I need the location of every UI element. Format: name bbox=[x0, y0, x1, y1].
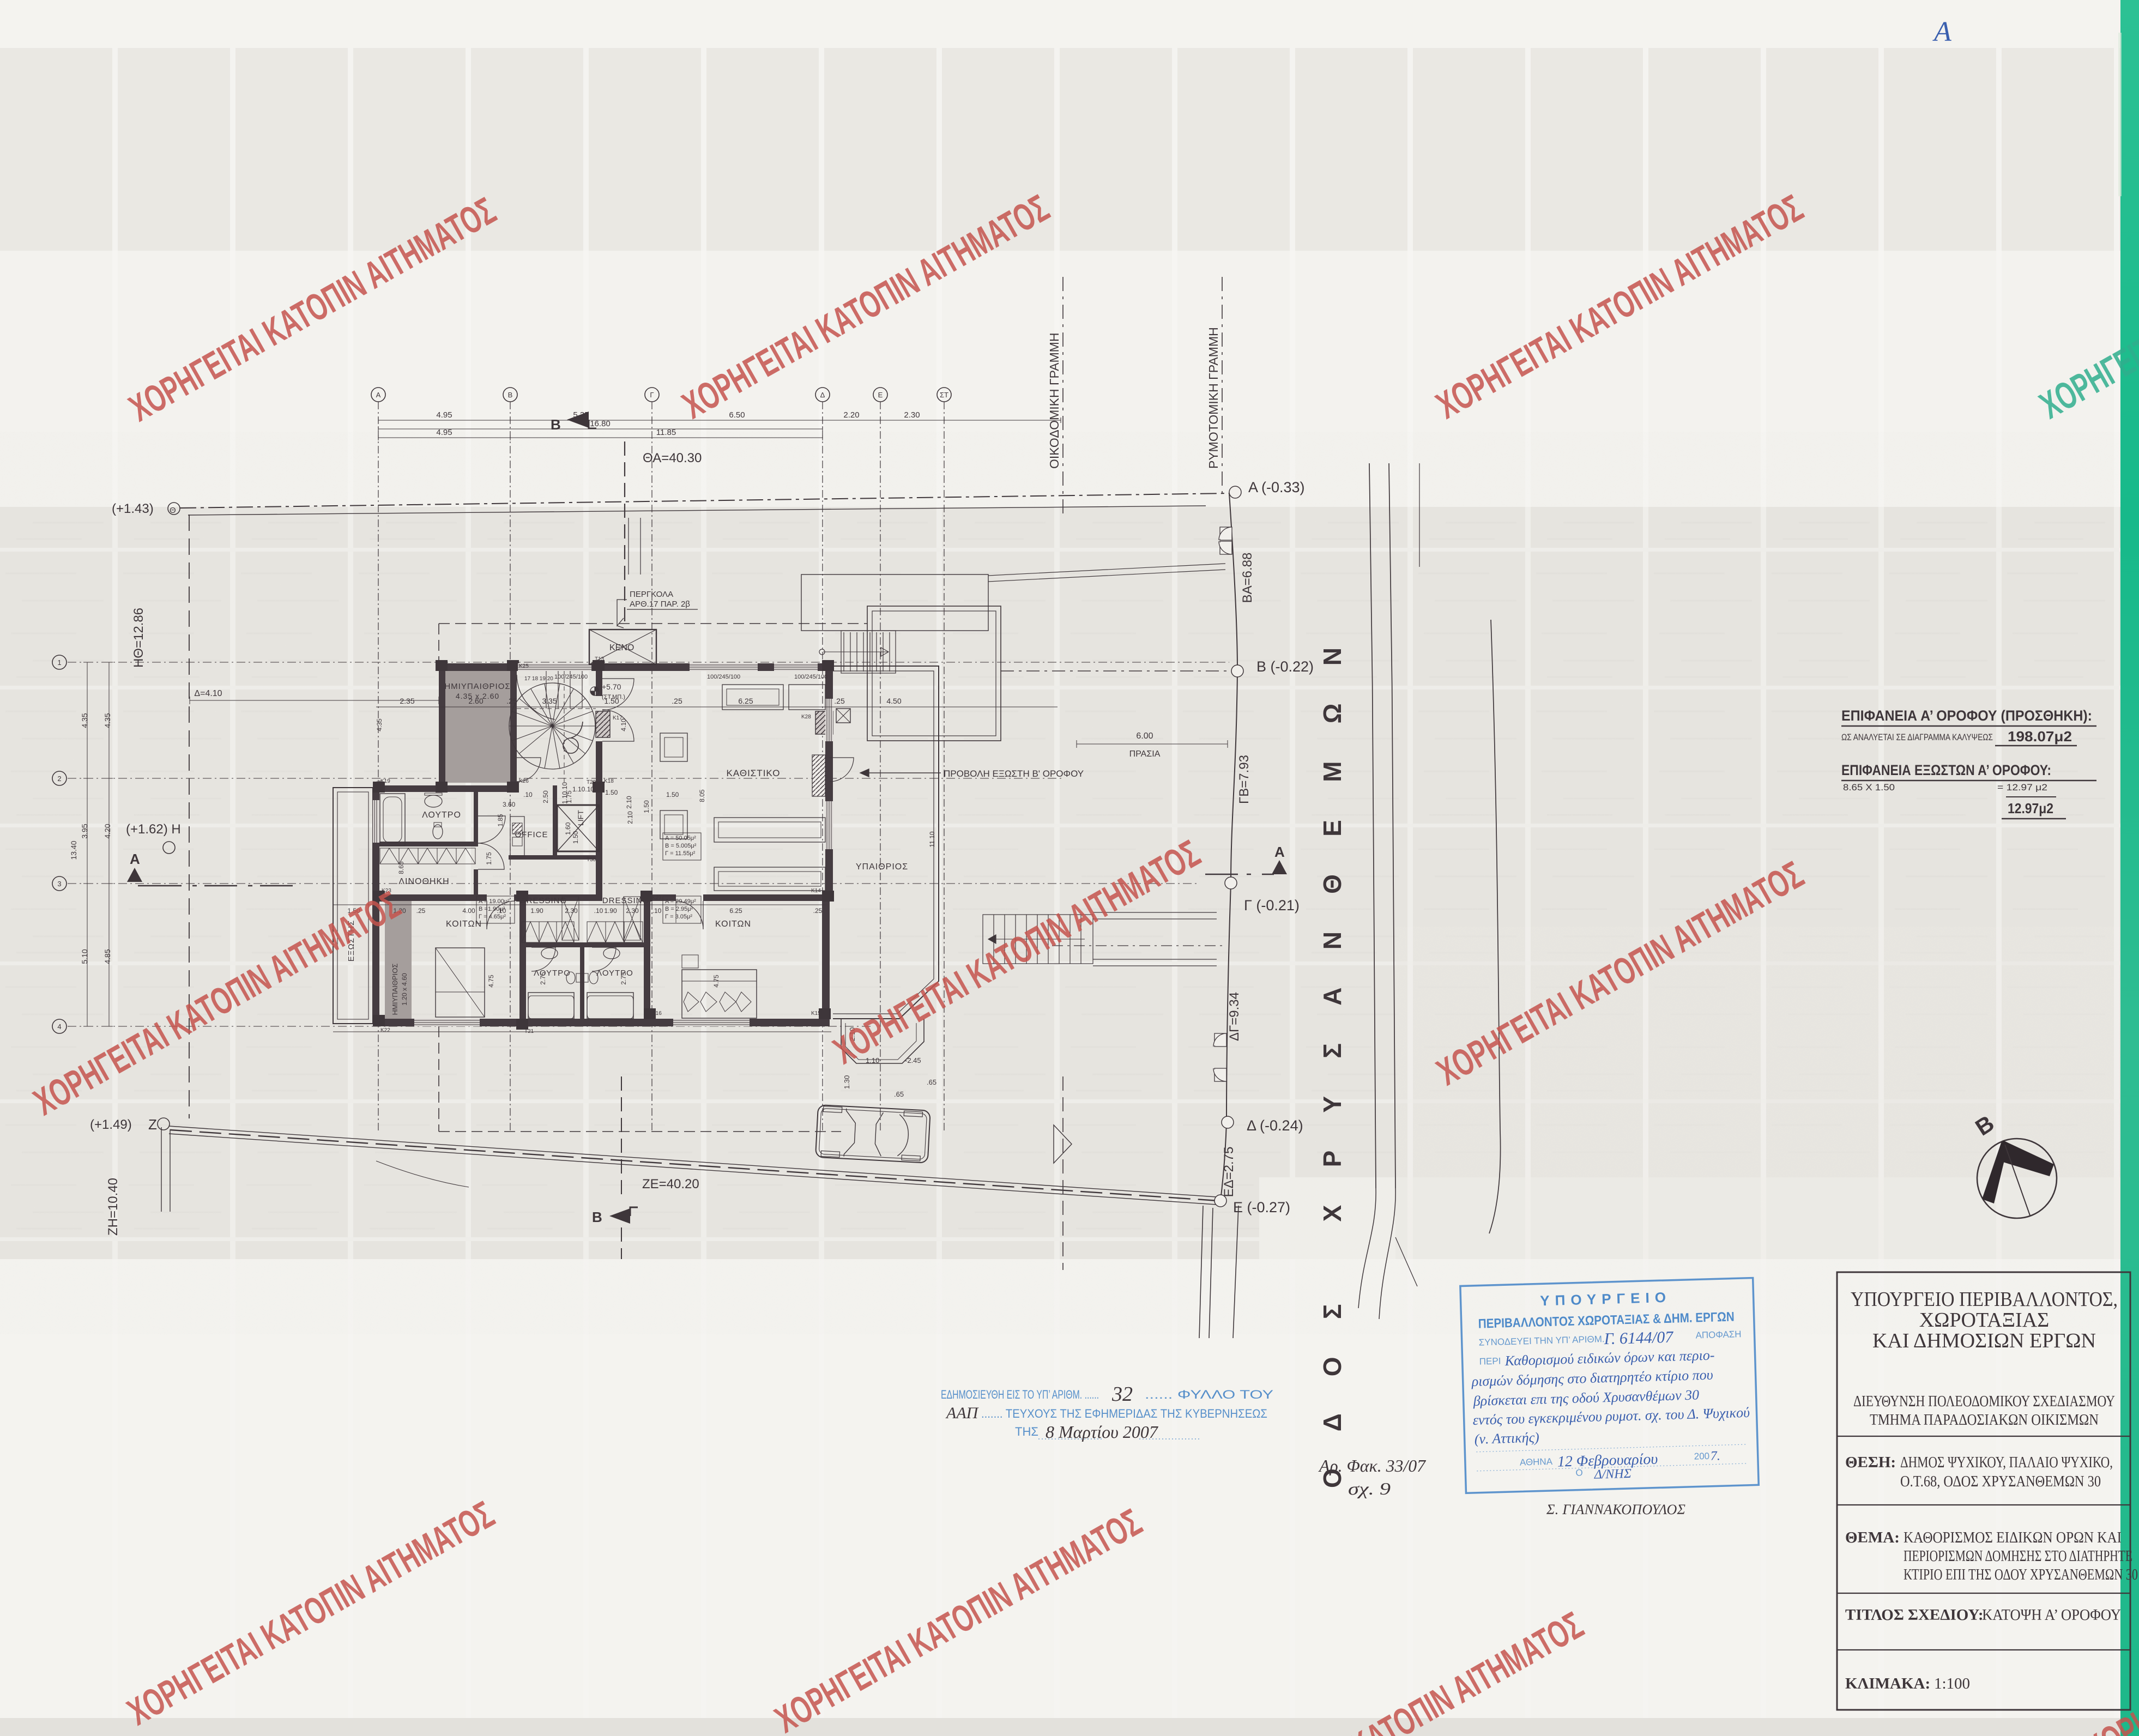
svg-text:4.75: 4.75 bbox=[487, 975, 495, 988]
svg-text:ΛΟΥΤΡΟ: ΛΟΥΤΡΟ bbox=[596, 969, 633, 978]
svg-text:Z: Z bbox=[148, 1116, 157, 1133]
svg-text:ΧΩΡΟΤΑΞΙΑΣ: ΧΩΡΟΤΑΞΙΑΣ bbox=[1919, 1309, 2050, 1332]
svg-text:Γ = 3.05μ²: Γ = 3.05μ² bbox=[665, 914, 692, 920]
svg-text:1.60: 1.60 bbox=[564, 822, 572, 835]
svg-text:B: B bbox=[551, 416, 561, 433]
svg-text:ΗΜΙΥΠΑΙΘΡΙΟΣ: ΗΜΙΥΠΑΙΘΡΙΟΣ bbox=[444, 682, 510, 691]
svg-text:A = 29.49μ²: A = 29.49μ² bbox=[665, 898, 696, 905]
svg-text:200: 200 bbox=[1694, 1451, 1709, 1462]
svg-text:ΕΔΗΜΟΣΙΕΥΘΗ ΕΙΣ ΤΟ ΥΠ’ ΑΡΙΘ: ΕΔΗΜΟΣΙΕΥΘΗ ΕΙΣ ΤΟ ΥΠ’ ΑΡΙΘΜ. ...... bbox=[941, 1388, 1099, 1401]
svg-text:K28: K28 bbox=[801, 714, 811, 720]
svg-text:-2.45: -2.45 bbox=[905, 1056, 921, 1064]
svg-text:1.90: 1.90 bbox=[530, 907, 543, 915]
svg-text:ΒΑ=6.88: ΒΑ=6.88 bbox=[1240, 553, 1255, 603]
svg-text:4.50: 4.50 bbox=[886, 697, 901, 705]
svg-text:A = 19.00μ²: A = 19.00μ² bbox=[479, 898, 510, 905]
svg-text:K18: K18 bbox=[604, 778, 614, 784]
svg-text:DRESSING: DRESSING bbox=[602, 896, 649, 905]
svg-text:2.75: 2.75 bbox=[539, 972, 547, 985]
svg-text:12.97μ2: 12.97μ2 bbox=[2008, 800, 2053, 816]
svg-text:ΕΠΙΦΑΝΕΙΑ Α’ ΟΡΟΦΟΥ (ΠΡΟΣΘΗΚ: ΕΠΙΦΑΝΕΙΑ Α’ ΟΡΟΦΟΥ (ΠΡΟΣΘΗΚΗ): bbox=[1841, 707, 2092, 724]
svg-text:4.00: 4.00 bbox=[462, 907, 475, 915]
svg-text:100/245/100: 100/245/100 bbox=[794, 674, 827, 680]
svg-text:11.10: 11.10 bbox=[928, 831, 936, 847]
svg-text:ΛΙΝΟΘΗΚΗ: ΛΙΝΟΘΗΚΗ bbox=[398, 877, 449, 886]
svg-text:4.35: 4.35 bbox=[376, 718, 383, 731]
svg-text:ΘΕΜΑ:: ΘΕΜΑ: bbox=[1845, 1529, 1900, 1546]
svg-text:16.80: 16.80 bbox=[590, 419, 611, 428]
svg-text:+5.70: +5.70 bbox=[602, 682, 621, 691]
svg-text:DRESSING: DRESSING bbox=[520, 896, 567, 905]
svg-text:ΚΑΘΟΡΙΣΜΟΣ ΕΙΔΙΚΩΝ ΟΡΩΝ ΚΑΙ: ΚΑΘΟΡΙΣΜΟΣ ΕΙΔΙΚΩΝ ΟΡΩΝ ΚΑΙ bbox=[1904, 1529, 2122, 1546]
svg-text:O: O bbox=[1575, 1467, 1583, 1478]
svg-text:Δ (-0.24): Δ (-0.24) bbox=[1247, 1117, 1303, 1134]
svg-text:2.10: 2.10 bbox=[626, 811, 634, 824]
svg-text:ΠΕΡΙ: ΠΕΡΙ bbox=[1479, 1356, 1501, 1366]
svg-text:3.95: 3.95 bbox=[80, 824, 89, 838]
svg-text:T21: T21 bbox=[524, 1029, 534, 1035]
svg-text:ΚΛΙΜΑΚΑ:: ΚΛΙΜΑΚΑ: bbox=[1845, 1675, 1930, 1692]
svg-text:B: B bbox=[592, 1209, 602, 1225]
svg-text:4.75: 4.75 bbox=[712, 975, 720, 988]
svg-text:(ν. Αττικής): (ν. Αττικής) bbox=[1474, 1430, 1539, 1447]
svg-text:11.85: 11.85 bbox=[656, 428, 676, 437]
svg-text:2.60: 2.60 bbox=[468, 697, 483, 705]
svg-text:2.75: 2.75 bbox=[620, 972, 627, 985]
svg-text:.25: .25 bbox=[672, 697, 682, 705]
svg-text:.25: .25 bbox=[813, 907, 823, 915]
svg-text:LIFT: LIFT bbox=[576, 810, 585, 826]
svg-text:Δ: Δ bbox=[820, 391, 825, 399]
svg-text:1:100: 1:100 bbox=[1934, 1675, 1970, 1692]
svg-text:K22: K22 bbox=[380, 1027, 390, 1033]
svg-text:ΥΠΑΙΘΡΙΟΣ: ΥΠΑΙΘΡΙΟΣ bbox=[856, 862, 908, 872]
svg-text:.10: .10 bbox=[497, 907, 506, 915]
svg-text:ΚΑΤΟΨΗ Α’ ΟΡΟΦΟΥ: ΚΑΤΟΨΗ Α’ ΟΡΟΦΟΥ bbox=[1982, 1606, 2121, 1624]
svg-text:ΘΑ=40.30: ΘΑ=40.30 bbox=[643, 451, 702, 465]
svg-text:1.10.10: 1.10.10 bbox=[572, 785, 594, 793]
svg-text:A: A bbox=[130, 851, 140, 867]
svg-text:7.: 7. bbox=[1710, 1449, 1720, 1463]
svg-text:4.95: 4.95 bbox=[436, 410, 452, 420]
svg-text:32: 32 bbox=[1111, 1383, 1133, 1406]
svg-text:2: 2 bbox=[57, 775, 61, 783]
svg-text:O.T.68, ΟΔΟΣ ΧΡΥΣΑΝΘΕΜΩΝ 30: O.T.68, ΟΔΟΣ ΧΡΥΣΑΝΘΕΜΩΝ 30 bbox=[1900, 1473, 2101, 1490]
svg-text:1.20 x 4.60: 1.20 x 4.60 bbox=[401, 973, 408, 1006]
svg-text:ZH=10.40: ZH=10.40 bbox=[106, 1178, 120, 1236]
svg-text:ΓΒ=7.93: ΓΒ=7.93 bbox=[1237, 755, 1252, 804]
svg-text:(+1.62) H: (+1.62) H bbox=[126, 822, 181, 837]
svg-text:8.65 X 1.50: 8.65 X 1.50 bbox=[1843, 782, 1895, 793]
svg-text:ΩΣ ΑΝΑΛΥΕΤΑΙ ΣΕ ΔΙΑΓΡΑΜΜΑ ΚΑΛΥ: ΩΣ ΑΝΑΛΥΕΤΑΙ ΣΕ ΔΙΑΓΡΑΜΜΑ ΚΑΛΥΨΕΩΣ bbox=[1841, 732, 1993, 742]
svg-text:B = 5.005μ²: B = 5.005μ² bbox=[665, 843, 697, 849]
svg-text:ΔΗΜΟΣ ΨΥΧΙΚΟΥ, ΠΑΛΑΙΟ ΨΥΧΙΚΟ,: ΔΗΜΟΣ ΨΥΧΙΚΟΥ, ΠΑΛΑΙΟ ΨΥΧΙΚΟ, bbox=[1900, 1454, 2113, 1471]
svg-text:A: A bbox=[1274, 844, 1285, 860]
svg-text:100/245/100: 100/245/100 bbox=[554, 674, 588, 680]
svg-text:K20: K20 bbox=[515, 895, 524, 901]
svg-text:4.95: 4.95 bbox=[436, 428, 452, 437]
svg-text:.25: .25 bbox=[506, 697, 517, 705]
svg-text:ΚΤΙΡΙΟ ΕΠΙ ΤΗΣ ΟΔΟΥ ΧΡΥΣΑΝΘΕΜΩ: ΚΤΙΡΙΟ ΕΠΙ ΤΗΣ ΟΔΟΥ ΧΡΥΣΑΝΘΕΜΩΝ 30 bbox=[1904, 1566, 2138, 1583]
svg-text:1.50: 1.50 bbox=[643, 800, 650, 813]
svg-text:B: B bbox=[508, 391, 513, 399]
svg-text:....... ΤΕΥΧΟΥΣ ΤΗΣ ΕΦΗΜΕΡΙ: ....... ΤΕΥΧΟΥΣ ΤΗΣ ΕΦΗΜΕΡΙΔΑΣ ΤΗΣ ΚΥΒΕΡ… bbox=[981, 1407, 1267, 1420]
svg-text:ΚΑΙ ΔΗΜΟΣΙΩΝ ΕΡΓΩΝ: ΚΑΙ ΔΗΜΟΣΙΩΝ ΕΡΓΩΝ bbox=[1872, 1329, 2096, 1352]
svg-text:198.07μ2: 198.07μ2 bbox=[2008, 728, 2072, 745]
svg-text:ΟΙΚΟΔΟΜΙΚΗ ΓΡΑΜΜΗ: ΟΙΚΟΔΟΜΙΚΗ ΓΡΑΜΜΗ bbox=[1047, 332, 1061, 469]
svg-text:4.35: 4.35 bbox=[103, 713, 112, 728]
svg-text:4.85: 4.85 bbox=[103, 949, 112, 964]
svg-text:K19: K19 bbox=[380, 778, 390, 784]
svg-text:.10: .10 bbox=[523, 791, 533, 799]
svg-text:ΔΓ=9.34: ΔΓ=9.34 bbox=[1227, 992, 1242, 1041]
svg-text:1.75: 1.75 bbox=[485, 852, 493, 865]
svg-text:ΤΜΗΜΑ ΠΑΡΑΔΟΣΙΑΚΩΝ ΟΙΚΙΣΜΩΝ: ΤΜΗΜΑ ΠΑΡΑΔΟΣΙΑΚΩΝ ΟΙΚΙΣΜΩΝ bbox=[1870, 1411, 2099, 1429]
svg-text:T30: T30 bbox=[587, 857, 596, 863]
svg-text:100/245/100: 100/245/100 bbox=[707, 674, 740, 680]
svg-text:ΑΡΘ.17 ΠΑΡ. 2β: ΑΡΘ.17 ΠΑΡ. 2β bbox=[630, 600, 690, 609]
svg-text:ΑΑΠ: ΑΑΠ bbox=[945, 1404, 980, 1422]
svg-text:ΕΠΙΦΑΝΕΙΑ ΕΞΩΣΤΩΝ Α’ ΟΡΟΦΟΥ:: ΕΠΙΦΑΝΕΙΑ ΕΞΩΣΤΩΝ Α’ ΟΡΟΦΟΥ: bbox=[1841, 762, 2051, 778]
svg-text:.65: .65 bbox=[894, 1090, 904, 1098]
svg-text:1.50: 1.50 bbox=[604, 697, 619, 705]
svg-text:Γ. 6144/07: Γ. 6144/07 bbox=[1603, 1328, 1674, 1348]
svg-text:4.20: 4.20 bbox=[103, 824, 112, 838]
svg-text:ΟΔΟΣ ΧΡΥΣΑΝΘΕΜΩΝ: ΟΔΟΣ ΧΡΥΣΑΝΘΕΜΩΝ bbox=[1318, 616, 1346, 1488]
svg-text:(+1.49): (+1.49) bbox=[90, 1117, 132, 1132]
svg-text:8 Μαρτίου 2007: 8 Μαρτίου 2007 bbox=[1046, 1422, 1159, 1442]
svg-text:8.65: 8.65 bbox=[397, 861, 405, 874]
svg-text:ΑΠΟΦΑΣΗ: ΑΠΟΦΑΣΗ bbox=[1695, 1329, 1742, 1340]
svg-text:K14: K14 bbox=[811, 888, 821, 894]
svg-text:HΘ=12.86: HΘ=12.86 bbox=[131, 608, 146, 668]
svg-text:1.50: 1.50 bbox=[666, 791, 679, 799]
svg-text:2.20: 2.20 bbox=[843, 410, 859, 420]
svg-text:13.40: 13.40 bbox=[69, 840, 78, 860]
svg-text:ΑΘΗΝΑ: ΑΘΗΝΑ bbox=[1520, 1456, 1553, 1468]
svg-text:ΠΡΟΒΟΛΗ ΕΞΩΣΤΗ Β' ΟΡΟΦΟΥ: ΠΡΟΒΟΛΗ ΕΞΩΣΤΗ Β' ΟΡΟΦΟΥ bbox=[944, 769, 1084, 779]
svg-text:6.50: 6.50 bbox=[729, 410, 745, 420]
svg-text:ΤΗΣ: ΤΗΣ bbox=[1015, 1425, 1038, 1438]
svg-text:E: E bbox=[878, 391, 883, 399]
svg-text:17 18 19 20: 17 18 19 20 bbox=[524, 676, 553, 682]
svg-text:Αρ. Φακ. 33/07: Αρ. Φακ. 33/07 bbox=[1318, 1456, 1427, 1475]
svg-text:6.25: 6.25 bbox=[729, 907, 742, 915]
svg-text:.25: .25 bbox=[834, 697, 845, 705]
svg-text:2.50: 2.50 bbox=[542, 790, 549, 803]
svg-text:A: A bbox=[376, 391, 381, 399]
svg-text:ΡΥΜΟΤΟΜΙΚΗ ΓΡΑΜΜΗ: ΡΥΜΟΤΟΜΙΚΗ ΓΡΑΜΜΗ bbox=[1206, 327, 1220, 469]
svg-text:A (-0.33): A (-0.33) bbox=[1248, 479, 1305, 495]
svg-text:Δ=4.10: Δ=4.10 bbox=[194, 689, 222, 698]
svg-text:1.90: 1.90 bbox=[604, 907, 617, 915]
svg-text:.10: .10 bbox=[652, 907, 662, 915]
svg-text:E (-0.27): E (-0.27) bbox=[1233, 1199, 1290, 1215]
svg-text:1.30: 1.30 bbox=[843, 1075, 851, 1089]
svg-text:3: 3 bbox=[57, 880, 61, 888]
svg-text:ΛΟΥΤΡΟ: ΛΟΥΤΡΟ bbox=[422, 810, 461, 820]
svg-text:K25: K25 bbox=[519, 663, 529, 669]
svg-text:6.25: 6.25 bbox=[738, 697, 753, 705]
svg-text:OFFICE: OFFICE bbox=[515, 830, 548, 839]
svg-text:KENO: KENO bbox=[609, 643, 634, 652]
svg-text:1.75: 1.75 bbox=[565, 790, 573, 803]
svg-text:2.35: 2.35 bbox=[400, 697, 414, 705]
svg-text:Σ. ΓΙΑΝΝΑΚΟΠΟΥΛΟΣ: Σ. ΓΙΑΝΝΑΚΟΠΟΥΛΟΣ bbox=[1546, 1502, 1686, 1517]
svg-text:1.50: 1.50 bbox=[572, 831, 579, 844]
svg-text:(+1.43): (+1.43) bbox=[112, 501, 154, 516]
svg-text:2.30: 2.30 bbox=[626, 907, 639, 915]
svg-text:Δ/ΝΗΣ: Δ/ΝΗΣ bbox=[1593, 1467, 1632, 1482]
svg-text:ΠΡΑΣΙΑ: ΠΡΑΣΙΑ bbox=[1129, 749, 1161, 759]
svg-text:K27: K27 bbox=[652, 895, 662, 901]
svg-text:.25: .25 bbox=[416, 907, 426, 915]
svg-text:ΣΤ: ΣΤ bbox=[940, 391, 948, 399]
svg-text:= 12.97 μ2: = 12.97 μ2 bbox=[1997, 782, 2047, 793]
svg-text:Γ = 11.55μ²: Γ = 11.55μ² bbox=[665, 850, 696, 857]
svg-text:ΔΙΕΥΘΥΝΣΗ ΠΟΛΕΟΔΟΜΙΚΟΥ ΣΧΕΔΙ: ΔΙΕΥΘΥΝΣΗ ΠΟΛΕΟΔΟΜΙΚΟΥ ΣΧΕΔΙΑΣΜΟΥ bbox=[1853, 1393, 2115, 1410]
svg-text:σχ. 9: σχ. 9 bbox=[1348, 1479, 1391, 1498]
svg-text:K26: K26 bbox=[519, 778, 529, 784]
svg-text:6.00: 6.00 bbox=[1136, 731, 1153, 741]
svg-text:1.85: 1.85 bbox=[497, 814, 504, 827]
svg-text:4.35: 4.35 bbox=[80, 713, 89, 728]
svg-text:B = 2.95μ²: B = 2.95μ² bbox=[665, 906, 693, 912]
svg-text:3.60: 3.60 bbox=[503, 801, 516, 808]
svg-text:ΘΕΣΗ:: ΘΕΣΗ: bbox=[1845, 1454, 1896, 1471]
svg-text:K17: K17 bbox=[613, 715, 623, 721]
svg-text:B (-0.22): B (-0.22) bbox=[1256, 658, 1314, 675]
svg-text:ΕΔ=2.75: ΕΔ=2.75 bbox=[1222, 1147, 1236, 1197]
svg-text:1: 1 bbox=[57, 658, 61, 667]
svg-text:T13: T13 bbox=[595, 656, 605, 662]
svg-text:ZE=40.20: ZE=40.20 bbox=[642, 1177, 699, 1191]
svg-text:A = 50.05μ²: A = 50.05μ² bbox=[665, 835, 696, 842]
svg-text:T29: T29 bbox=[587, 779, 596, 785]
svg-text:ΗΜΙΥΠΑΙΘΡΙΟΣ: ΗΜΙΥΠΑΙΘΡΙΟΣ bbox=[391, 964, 399, 1015]
svg-text:ΠΕΡΓΚΟΛΑ: ΠΕΡΓΚΟΛΑ bbox=[630, 590, 673, 599]
svg-text:ΥΠΟΥΡΓΕΙΟ ΠΕΡΙΒΑΛΛΟΝΤΟΣ,: ΥΠΟΥΡΓΕΙΟ ΠΕΡΙΒΑΛΛΟΝΤΟΣ, bbox=[1851, 1288, 2118, 1311]
svg-text:1.50: 1.50 bbox=[605, 789, 618, 796]
svg-text:2.10: 2.10 bbox=[625, 796, 633, 809]
svg-text:Γ (-0.21): Γ (-0.21) bbox=[1244, 897, 1300, 914]
svg-text:ΠΕΡΙΟΡΙΣΜΩΝ ΔΟΜΗΣΗΣ ΣΤΟ ΔΙΑΤΗΡ: ΠΕΡΙΟΡΙΣΜΩΝ ΔΟΜΗΣΗΣ ΣΤΟ ΔΙΑΤΗΡΗΤΕ bbox=[1904, 1547, 2132, 1565]
svg-text:4: 4 bbox=[57, 1023, 61, 1031]
svg-text:ΚΟΙΤΩΝ: ΚΟΙΤΩΝ bbox=[715, 920, 751, 929]
svg-text:5.10: 5.10 bbox=[80, 949, 89, 964]
svg-text:8.05: 8.05 bbox=[698, 789, 706, 802]
svg-text:A: A bbox=[1932, 16, 1951, 47]
svg-text:ΤΙΤΛΟΣ ΣΧΕΔΙΟΥ:: ΤΙΤΛΟΣ ΣΧΕΔΙΟΥ: bbox=[1845, 1606, 1984, 1624]
svg-text:3.35: 3.35 bbox=[542, 697, 557, 705]
svg-text:...... ΦΥΛΛΟ ΤΟΥ: ...... ΦΥΛΛΟ ΤΟΥ bbox=[1145, 1388, 1273, 1401]
svg-text:K16: K16 bbox=[652, 1011, 662, 1017]
svg-text:ΚΑΘΙΣΤΙΚΟ: ΚΑΘΙΣΤΙΚΟ bbox=[727, 768, 781, 778]
svg-text:2.30: 2.30 bbox=[904, 410, 920, 420]
svg-text:.65: .65 bbox=[927, 1078, 936, 1086]
svg-text:.10: .10 bbox=[594, 907, 603, 915]
svg-text:2.30: 2.30 bbox=[565, 907, 578, 915]
svg-text:Γ: Γ bbox=[650, 391, 654, 399]
svg-text:K15: K15 bbox=[811, 1011, 821, 1017]
svg-text:Θ: Θ bbox=[170, 506, 176, 515]
